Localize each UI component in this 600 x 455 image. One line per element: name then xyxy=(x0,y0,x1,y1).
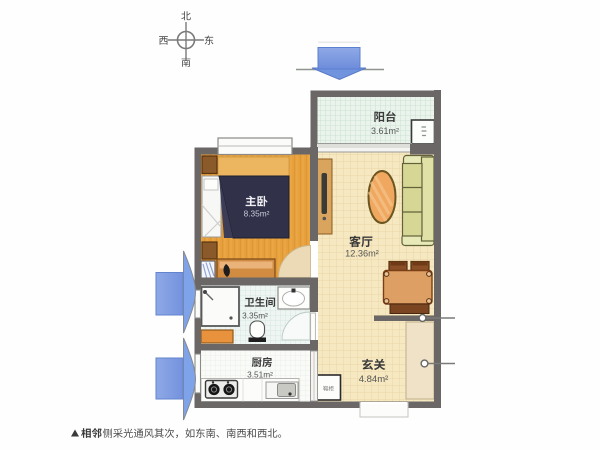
svg-text:12.36m²: 12.36m² xyxy=(345,249,379,259)
svg-text:3.61m²: 3.61m² xyxy=(371,126,399,136)
svg-text:8.35m²: 8.35m² xyxy=(244,209,270,219)
svg-text:3.35m²: 3.35m² xyxy=(242,311,268,321)
svg-text:4.84m²: 4.84m² xyxy=(359,374,389,385)
svg-text:3.51m²: 3.51m² xyxy=(247,370,273,380)
